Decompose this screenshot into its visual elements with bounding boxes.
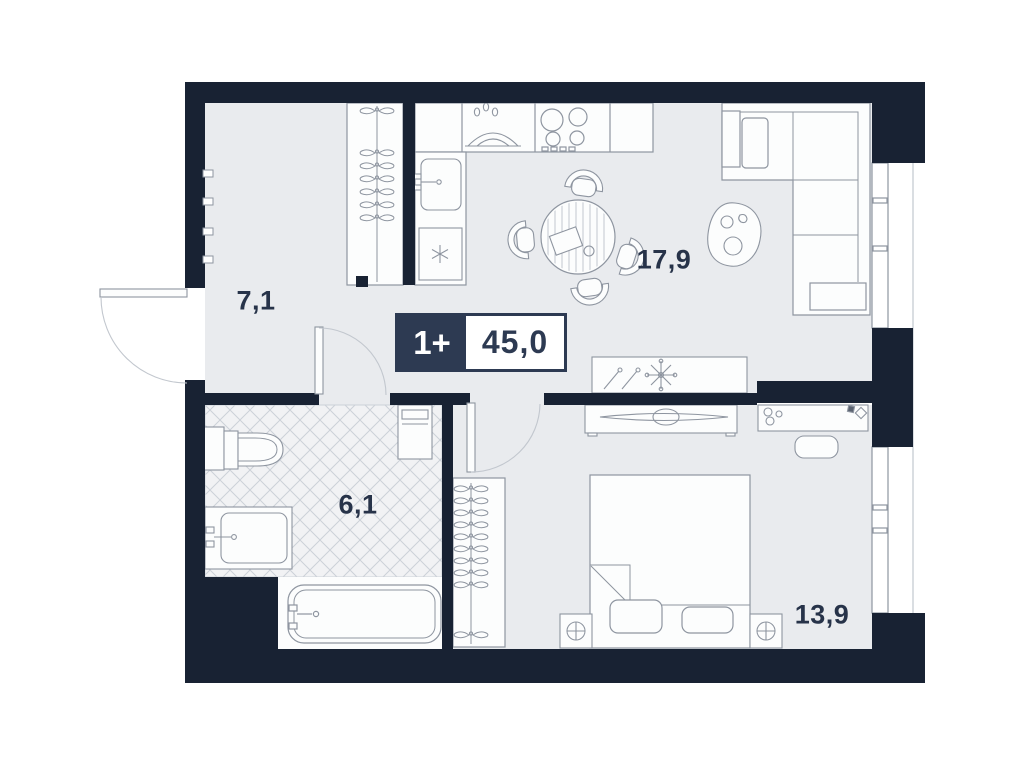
area-badge: 1+ 45,0 [395,313,567,372]
entrance-door-icon [100,289,187,383]
room-label-hallway: 7,1 [236,286,275,317]
room-label-bedroom: 13,9 [795,600,850,631]
pillow-icon [610,600,662,633]
floors [205,103,872,649]
bathtub-icon [288,585,441,643]
dining-table-icon [541,200,615,274]
bed-icon [590,475,750,648]
tv-stand-icon [585,405,737,436]
apartment-type-badge: 1+ [398,316,466,369]
room-label-kitchen-living: 17,9 [637,245,692,276]
room-label-bathroom: 6,1 [338,490,377,521]
console-plant-icon [592,357,747,393]
washing-machine-icon [398,405,432,459]
pillow-icon [682,607,733,633]
desk-chair-icon [795,436,838,458]
total-area-badge: 45,0 [466,316,564,369]
bedroom-wardrobe-icon [453,478,505,647]
floor-plan: 7,1 17,9 6,1 13,9 1+ 45,0 [0,0,1024,768]
floor-plan-drawing [0,0,1024,768]
hallway-closet-icon [347,103,403,285]
bathroom-sink-icon [205,507,292,569]
rug-icon [708,203,761,266]
